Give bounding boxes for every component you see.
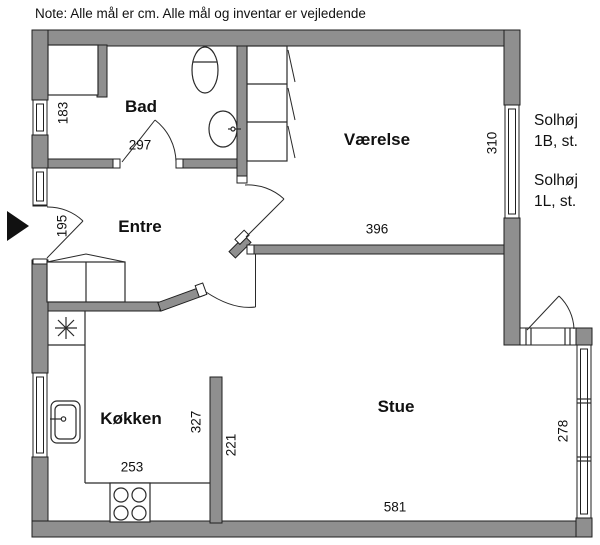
dimension-183: 183 [56,102,71,125]
room-label-vaerelse: Værelse [344,130,410,150]
entrance-arrow-icon [7,211,29,241]
dimension-327: 327 [189,411,204,434]
wardrobe-entre-icon [47,254,125,302]
kitchen-sink-icon [50,401,80,443]
wardrobe-vaerelse-icon [247,46,295,161]
dimension-278: 278 [556,420,571,443]
address-2-line-1: Solhøj [534,170,578,191]
toilet-icon [192,47,218,93]
dimension-195: 195 [55,215,70,238]
fridge-star-icon [55,317,77,339]
washbasin-icon [209,111,241,147]
floor-plan: Note: Alle mål er cm. Alle mål og invent… [0,0,600,545]
address-1-line-2: 1B, st. [534,131,578,152]
room-label-stue: Stue [378,397,415,417]
dimension-396: 396 [366,222,389,237]
address-2-line-2: 1L, st. [534,191,578,212]
vaerelse-door-swing [245,185,284,237]
kitchen-counter [48,311,210,483]
dimension-221: 221 [224,434,239,457]
window-vaerelse-icon [505,105,519,218]
window-entre-icon [33,168,47,205]
dimension-297: 297 [129,138,152,153]
address-label-2: Solhøj 1L, st. [534,170,578,212]
window-stue-icon [577,345,591,518]
room-label-koekken: Køkken [100,409,161,429]
room-label-entre: Entre [118,217,161,237]
window-koekken-icon [33,373,47,457]
stove-icon [110,483,150,522]
address-label-1: Solhøj 1B, st. [534,110,578,152]
window-bad-icon [33,100,47,135]
address-1-line-1: Solhøj [534,110,578,131]
entre-stue-door-swing [206,254,256,307]
dimension-581: 581 [384,500,407,515]
shower-niche-icon [48,45,98,95]
balcony-door-icon [520,296,576,345]
floor-plan-drawing [0,0,600,545]
room-label-bad: Bad [125,97,157,117]
dimension-310: 310 [485,132,500,155]
dimension-253: 253 [121,460,144,475]
